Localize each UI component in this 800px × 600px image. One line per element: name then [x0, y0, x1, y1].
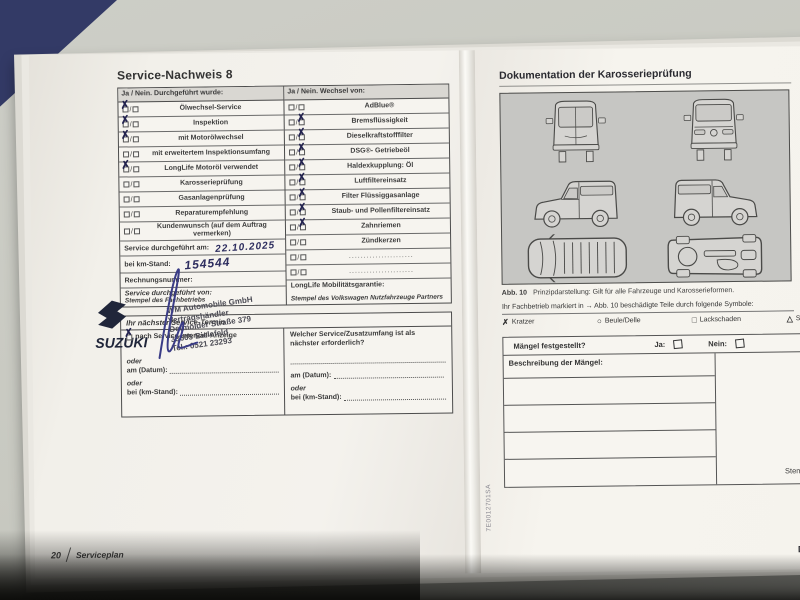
checklist-item-label: Staub- und Pollenfiltereinsatz [314, 207, 448, 217]
next-service-right: Welcher Service/Zusatzumfang ist als näc… [283, 327, 452, 415]
ja-checkbox [123, 181, 129, 187]
defect-description-label: Beschreibung der Mängel: [504, 353, 715, 379]
nein-checkbox: ✗ [300, 224, 306, 230]
ja-nein-checkboxes: / [290, 239, 314, 246]
checklist-item-label: ...................... [314, 266, 448, 276]
ja-checkbox: ✗ [122, 106, 128, 112]
nein-checkbox: ✗ [299, 179, 305, 185]
desk-scene: Service-Nachweis 8 Ja / Nein. Durchgefüh… [0, 0, 800, 600]
figure-label: Abb. 10 [502, 290, 527, 297]
yes-checkbox [673, 339, 683, 349]
nein-checkbox: ✗ [299, 119, 305, 125]
nein-checkbox: ✗ [299, 149, 305, 155]
page-title: Dokumentation der Karosserieprüfung [499, 66, 791, 87]
next-km-label: bei (km-Stand): [127, 389, 178, 397]
ja-checkbox [289, 164, 295, 170]
ja-checkbox [289, 134, 295, 140]
fill-in-line [344, 392, 446, 400]
left-page: Service-Nachweis 8 Ja / Nein. Durchgefüh… [29, 50, 465, 578]
defect-table: Mängel festgestellt? Ja: Nein: Beschreib… [502, 332, 800, 488]
ja-nein-checkboxes: / [124, 228, 148, 235]
damage-symbol: □Lackschaden [692, 314, 787, 324]
fill-in-line [180, 388, 279, 396]
checklist-item-label: Inspektion [147, 119, 275, 129]
checklist-item-label: mit Motorölwechsel [147, 134, 275, 144]
checklist-item-label: Zahnriemen [314, 222, 448, 232]
ja-nein-checkboxes: /✗ [289, 134, 313, 141]
ja-nein-checkboxes: /✗ [290, 209, 314, 216]
service-booklet: Service-Nachweis 8 Ja / Nein. Durchgefüh… [29, 44, 800, 578]
checklist-item-label: AdBlue® [312, 102, 446, 112]
nein-checkbox [300, 269, 306, 275]
ja-checkbox: ✗ [123, 121, 129, 127]
checklist-item-label: ...................... [314, 251, 448, 261]
symbol-glyph-icon: ○ [597, 317, 602, 326]
desk-shadow [0, 530, 420, 600]
nein-checkbox [298, 104, 304, 110]
figure-caption-text: Prinzipdarstellung: Gilt für alle Fahrze… [533, 287, 734, 296]
ja-nein-checkboxes: /✗ [289, 179, 313, 186]
nein-checkbox: ✗ [300, 194, 306, 200]
ja-checkbox [290, 194, 296, 200]
next-km-label: bei (km-Stand): [291, 393, 342, 401]
checklist-item-label: Luftfiltereinsatz [313, 177, 447, 187]
checklist-item-label: Dieselkraftstofffilter [313, 132, 447, 142]
checklist-item-label: Gasanlagenprüfung [148, 194, 276, 204]
damage-symbol: ✗Kratzer [502, 317, 597, 327]
ja-checkbox [124, 228, 130, 234]
van-rear-view-diagram [506, 95, 645, 171]
marking-instruction: Ihr Fachbetrieb markiert in → Abb. 10 be… [502, 300, 794, 315]
stamp-caption-right: Stempel des Volkswagen Nutzfahrzeuge Par… [291, 294, 447, 303]
blank-write-row [505, 457, 716, 487]
service-date-label: Service durchgeführt am: [124, 244, 209, 252]
ja-nein-checkboxes: / [124, 211, 148, 218]
nein-checkbox [133, 181, 139, 187]
km-label: bei km-Stand: [124, 261, 170, 269]
defect-stamp-column [716, 351, 800, 484]
stamp-caption-partial: Stempel [785, 466, 800, 475]
van-front-view-diagram [644, 93, 783, 169]
no-label: Nein: [708, 339, 727, 348]
performed-rows: ✗/Ölwechsel-Service✗/Inspektion✗/mit Mot… [118, 101, 285, 242]
ja-nein-checkboxes: / [123, 151, 147, 158]
nein-checkbox [133, 151, 139, 157]
defect-question: Mängel festgestellt? [513, 340, 648, 351]
ja-nein-checkboxes: /✗ [289, 119, 313, 126]
service-checklist-table: Ja / Nein. Durchgeführt wurde: ✗/Ölwechs… [117, 84, 452, 308]
nein-checkbox [132, 106, 138, 112]
nein-checkbox [300, 239, 306, 245]
yes-label: Ja: [654, 340, 665, 349]
ja-nein-checkboxes: / [288, 104, 312, 111]
symbol-label: Lackschaden [700, 316, 741, 324]
km-row: bei km-Stand: 154544 [120, 255, 285, 274]
ja-checkbox [290, 209, 296, 215]
no-checkbox [735, 339, 745, 349]
ja-nein-checkboxes: / [123, 181, 147, 188]
ja-nein-checkboxes: / [290, 254, 314, 261]
suzuki-s-icon [95, 300, 129, 330]
ja-nein-checkboxes: /✗ [289, 149, 313, 156]
form-part-number: 7E0012701SA [485, 484, 493, 532]
checklist-item-label: mit erweitertem Inspektionsumfang [147, 149, 275, 159]
ja-checkbox [290, 269, 296, 275]
symbol-label: Steinschlag [796, 315, 800, 322]
checklist-item-label: Karosserieprüfung [147, 179, 275, 189]
nein-checkbox [134, 211, 140, 217]
checklist-item-label: Filter Flüssiggasanlage [314, 192, 448, 202]
damage-symbol: △Steinschlag [787, 314, 800, 324]
ja-nein-checkboxes: ✗/ [123, 121, 147, 128]
ja-nein-checkboxes: ✗/ [123, 166, 147, 173]
next-date-label: am (Datum): [290, 372, 331, 379]
figure-caption: Abb. 10Prinzipdarstellung: Gilt für alle… [502, 286, 794, 297]
checklist-row: /Kundenwunsch (auf dem Auftrag vermerken… [120, 221, 285, 242]
checklist-column-changed: Ja / Nein. Wechsel von: /AdBlue®/✗Bremsf… [283, 85, 451, 305]
checklist-item-label: Haldexkupplung: Öl [313, 162, 447, 172]
next-date-label: am (Datum): [127, 367, 168, 374]
nein-checkbox [134, 196, 140, 202]
next-service-question: Welcher Service/Zusatzumfang ist als näc… [290, 330, 430, 349]
blank-write-row [504, 403, 715, 433]
ja-checkbox [123, 151, 129, 157]
van-top-view-diagram [508, 231, 647, 285]
or-label: oder [127, 379, 279, 388]
nein-checkbox [134, 228, 140, 234]
ja-checkbox [289, 179, 295, 185]
interval-checkbox: ✗ [126, 334, 132, 340]
checklist-column-performed: Ja / Nein. Durchgeführt wurde: ✗/Ölwechs… [118, 87, 286, 307]
nein-checkbox [133, 166, 139, 172]
checklist-item-label: DSG®- Getriebeöl [313, 147, 447, 157]
suzuki-logo: SUZUKI [95, 299, 166, 351]
ja-checkbox [288, 104, 294, 110]
damage-symbol: ○Beule/Delle [597, 316, 692, 326]
ja-nein-checkboxes: /✗ [290, 224, 314, 231]
ja-nein-checkboxes: /✗ [290, 194, 314, 201]
fill-in-line [169, 366, 278, 374]
symbol-label: Beule/Delle [605, 317, 641, 324]
ja-checkbox: ✗ [123, 136, 129, 142]
checklist-item-label: Bremsflüssigkeit [313, 117, 447, 127]
nein-checkbox: ✗ [299, 164, 305, 170]
checklist-item-label: Kundenwunsch (auf dem Auftrag vermerken) [148, 222, 276, 240]
checklist-item-label: Zündkerzen [314, 236, 448, 246]
ja-checkbox [124, 196, 130, 202]
or-label: oder [291, 383, 446, 392]
blank-write-row [504, 376, 715, 406]
checklist-item-label: Ölwechsel-Service [146, 104, 274, 114]
body-inspection-diagram [499, 89, 791, 285]
ja-checkbox [290, 254, 296, 260]
nein-checkbox [300, 254, 306, 260]
longlife-warranty-box: LongLife Mobilitätsgarantie: Stempel des… [287, 279, 451, 305]
km-handwritten: 154544 [184, 255, 231, 273]
right-page: Dokumentation der Karosserieprüfung [475, 44, 800, 573]
fill-in-line [290, 353, 445, 364]
changed-rows: /AdBlue®/✗Bremsflüssigkeit/✗Dieselkrafts… [284, 99, 450, 281]
dealer-stamp-box: Service durchgeführt von: SUZUKI [121, 287, 286, 307]
damage-symbols-legend: ✗Kratzer○Beule/Delle□Lackschaden△Steinsc… [502, 314, 800, 327]
page-title: Service-Nachweis 8 [117, 65, 449, 83]
blank-write-row [504, 430, 715, 460]
ja-checkbox [124, 211, 130, 217]
nein-checkbox [133, 136, 139, 142]
ja-checkbox [290, 239, 296, 245]
ja-nein-checkboxes: /✗ [289, 164, 313, 171]
symbol-label: Kratzer [512, 318, 535, 325]
van-side-view-left-diagram [507, 169, 646, 233]
invoice-label: Rechnungsnummer: [125, 276, 193, 284]
ja-nein-checkboxes: / [124, 196, 148, 203]
nein-checkbox: ✗ [299, 134, 305, 140]
ja-nein-checkboxes: ✗/ [123, 136, 147, 143]
van-underbody-view-diagram [646, 229, 785, 283]
or-label: oder [127, 357, 279, 366]
longlife-label: LongLife Mobilitätsgarantie: [291, 281, 447, 290]
nein-checkbox: ✗ [300, 209, 306, 215]
fill-in-line [333, 370, 443, 378]
service-date-handwritten: 22.10.2025 [215, 240, 276, 255]
ja-checkbox: ✗ [123, 166, 129, 172]
symbol-glyph-icon: ✗ [502, 318, 509, 327]
checklist-item-label: Reparaturempfehlung [148, 209, 276, 219]
symbol-glyph-icon: △ [787, 314, 793, 323]
ja-checkbox [289, 119, 295, 125]
defect-description-column: Beschreibung der Mängel: [504, 353, 718, 487]
ja-checkbox [290, 224, 296, 230]
van-side-view-right-diagram [645, 167, 784, 231]
ja-nein-checkboxes: ✗/ [122, 106, 146, 113]
nein-checkbox [133, 121, 139, 127]
ja-checkbox [289, 149, 295, 155]
checklist-item-label: LongLife Motoröl verwendet [147, 164, 275, 174]
symbol-glyph-icon: □ [692, 316, 697, 325]
ja-nein-checkboxes: / [290, 269, 314, 276]
